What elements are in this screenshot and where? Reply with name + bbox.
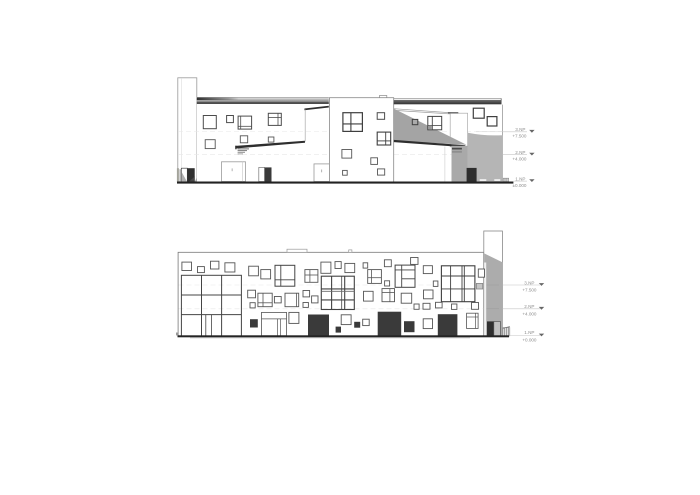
svg-text:2.NP: 2.NP	[524, 304, 534, 309]
svg-text:3.NP: 3.NP	[515, 127, 525, 132]
svg-text:2.NP: 2.NP	[515, 150, 525, 155]
svg-text:+4.000: +4.000	[522, 311, 537, 316]
svg-text:+0.000: +0.000	[522, 337, 537, 342]
svg-text:+7.500: +7.500	[512, 134, 527, 139]
svg-text:+7.500: +7.500	[522, 288, 537, 293]
svg-text:±0.000: ±0.000	[512, 183, 526, 188]
svg-text:+4.000: +4.000	[512, 156, 527, 161]
svg-text:1.NP: 1.NP	[515, 177, 525, 182]
svg-text:1.NP: 1.NP	[524, 330, 534, 335]
svg-text:3.NP: 3.NP	[524, 280, 534, 285]
